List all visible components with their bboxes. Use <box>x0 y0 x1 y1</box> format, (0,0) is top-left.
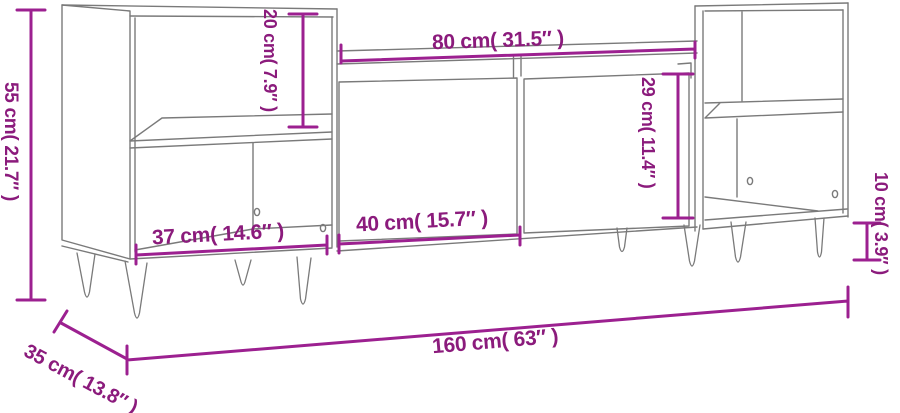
hairpin-leg <box>297 257 311 304</box>
dim-label-door-height: 29 cm( 11.4″ ) <box>639 77 657 189</box>
screw-hole <box>832 190 837 197</box>
dim-label-middle-top-width: 80 cm( 31.5″ ) <box>432 28 565 54</box>
dim-line-total-height <box>17 10 45 300</box>
right-cabinet-shelf <box>705 99 843 118</box>
screw-hole <box>254 208 259 215</box>
left-side-panel <box>62 5 130 259</box>
dim-line-upper-compartment <box>289 14 317 127</box>
dim-line-depth <box>54 311 127 359</box>
screw-hole <box>747 177 752 184</box>
hairpin-leg <box>125 261 147 318</box>
hairpin-leg <box>684 225 700 266</box>
right-cabinet-top-edges <box>695 3 848 11</box>
right-cabinet-right-wall <box>843 3 848 217</box>
hairpin-leg <box>731 222 746 262</box>
dim-label-total-height: 55 cm( 21.7″ ) <box>1 82 20 201</box>
right-cabinet-floor <box>705 197 818 211</box>
dim-label-upper-compartment-height: 20 cm( 7.9″ ) <box>261 9 279 112</box>
furniture-dimension-diagram: 55 cm( 21.7″ ) 20 cm( 7.9″ ) 80 cm( 31.5… <box>0 0 900 413</box>
sliding-door-right <box>524 73 689 233</box>
hairpin-leg <box>77 253 95 297</box>
hairpin-leg <box>815 218 824 257</box>
right-cabinet-bottom-edge <box>703 209 848 229</box>
left-cabinet-right-wall <box>332 9 337 247</box>
right-cabinet <box>695 3 848 231</box>
dim-label-leg-height: 10 cm( 3.9″ ) <box>872 172 890 275</box>
right-cabinet-left-wall <box>695 6 703 231</box>
hairpin-leg <box>235 260 251 285</box>
